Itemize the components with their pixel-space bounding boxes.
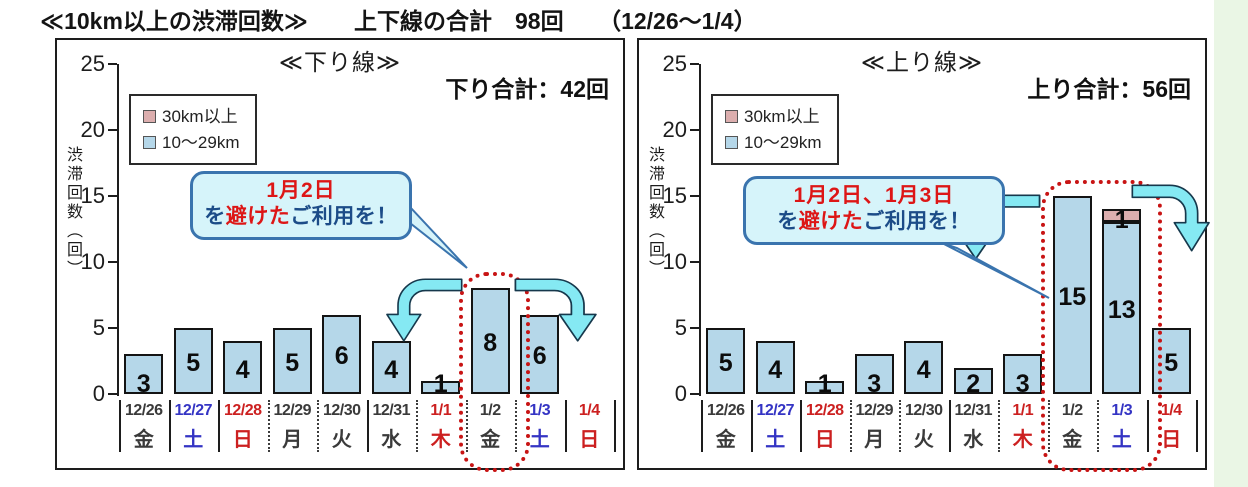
x-axis-weekday: 月: [268, 423, 318, 452]
bar-value-label: 4: [899, 358, 949, 383]
x-axis-day-label: 12/29月: [850, 402, 900, 452]
legend-swatch-30km-icon: [143, 110, 156, 123]
y-tick-label: 0: [61, 381, 105, 407]
x-axis-labels: 12/26金12/27土12/28日12/29月12/30火12/31水1/1木…: [119, 398, 619, 456]
bar-value-label: 5: [701, 351, 751, 376]
y-tick-label: 10: [61, 249, 105, 275]
y-tick-mark: [690, 195, 699, 197]
chart-panel-kudari: ≪下り線≫ 下り合計：42回 30km以上 10～29km 渋滞回数（回） 25…: [55, 38, 625, 470]
bar-value-label: 6: [317, 344, 367, 369]
y-tick-label: 0: [643, 381, 687, 407]
callout-line1: 1月2日、1月3日: [754, 183, 994, 209]
legend-label: 30km以上: [744, 104, 820, 130]
x-axis-weekday: 日: [218, 423, 268, 452]
y-tick-label: 10: [643, 249, 687, 275]
x-axis-day-label: 12/28日: [218, 402, 268, 452]
x-axis-date: 12/30: [899, 402, 949, 420]
callout-line2: を避けたご利用を！: [201, 204, 401, 230]
y-tick-label: 15: [643, 183, 687, 209]
y-tick-label: 20: [643, 117, 687, 143]
y-tick-mark: [690, 327, 699, 329]
x-axis-date: 12/29: [850, 402, 900, 420]
y-tick-label: 20: [61, 117, 105, 143]
y-tick-label: 5: [643, 315, 687, 341]
x-axis-date: 12/26: [701, 402, 751, 420]
x-axis-day-label: 12/26金: [701, 402, 751, 452]
bar-value-label: 5: [169, 351, 219, 376]
x-axis-date: 1/4: [565, 402, 615, 420]
legend-swatch-10-29km-icon: [725, 136, 738, 149]
bar-value-label: 4: [367, 358, 417, 383]
x-axis-day-label: 12/27土: [169, 402, 219, 452]
x-axis-weekday: 土: [751, 423, 801, 452]
background-strip: [1214, 0, 1248, 487]
callout-text: 避けた: [226, 205, 291, 228]
y-tick-label: 25: [61, 51, 105, 77]
x-axis-weekday: 月: [850, 423, 900, 452]
y-tick-mark: [690, 261, 699, 263]
callout-text: 避けた: [799, 210, 864, 233]
x-axis-day-label: 12/26金: [119, 402, 169, 452]
x-axis-day-label: 12/31水: [949, 402, 999, 452]
bar-value-label: 2: [949, 372, 999, 397]
callout-bubble: 1月2日 を避けたご利用を！: [190, 171, 412, 240]
callout-pointer: [409, 206, 469, 270]
x-axis-day-label: 12/31水: [367, 402, 417, 452]
bar-value-label: 3: [850, 372, 900, 397]
curved-arrow-right-icon: [1131, 184, 1211, 254]
y-tick-mark: [690, 129, 699, 131]
x-axis-day-label: 12/30火: [317, 402, 367, 452]
x-axis-day-label: 12/27土: [751, 402, 801, 452]
x-axis-weekday: 日: [800, 423, 850, 452]
x-axis-day-label: 1/4日: [565, 402, 615, 452]
x-axis-date: 12/27: [751, 402, 801, 420]
page-title: ≪10km以上の渋滞回数≫ 上下線の合計 98回 （12/26～1/4）: [40, 2, 757, 36]
legend-item: 10～29km: [725, 130, 821, 156]
legend-swatch-10-29km-icon: [143, 136, 156, 149]
y-tick-mark: [690, 393, 699, 395]
legend: 30km以上 10～29km: [129, 94, 257, 165]
x-axis-date: 12/28: [218, 402, 268, 420]
y-tick-label: 15: [61, 183, 105, 209]
y-tick-label: 5: [61, 315, 105, 341]
legend-label: 10～29km: [162, 130, 239, 156]
bar-value-label: 1: [800, 372, 850, 397]
callout-line1: 1月2日: [201, 178, 401, 204]
y-tick-mark: [108, 63, 117, 65]
x-axis-date: 12/27: [169, 402, 219, 420]
x-axis-date: 12/26: [119, 402, 169, 420]
x-axis-date: 12/29: [268, 402, 318, 420]
chart-panel-nobori: ≪上り線≫ 上り合計：56回 30km以上 10～29km 渋滞回数（回） 25…: [637, 38, 1207, 470]
x-axis-weekday: 金: [701, 423, 751, 452]
y-tick-mark: [108, 129, 117, 131]
bar-value-label: 4: [751, 358, 801, 383]
legend-item: 30km以上: [725, 104, 821, 130]
bar-value-label: 5: [268, 351, 318, 376]
legend-swatch-30km-icon: [725, 110, 738, 123]
curved-arrow-left-icon: [385, 278, 463, 344]
curved-arrow-right-icon: [514, 278, 598, 344]
callout-bubble: 1月2日、1月3日 を避けたご利用を！: [743, 176, 1005, 245]
x-axis-separator: [1196, 400, 1198, 452]
x-axis-day-label: 12/30火: [899, 402, 949, 452]
x-axis-weekday: 火: [317, 423, 367, 452]
bar-value-label: 4: [218, 358, 268, 383]
x-axis-date: 12/31: [367, 402, 417, 420]
x-axis-date: 12/31: [949, 402, 999, 420]
x-axis-weekday: 火: [899, 423, 949, 452]
y-tick-mark: [108, 261, 117, 263]
x-axis-day-label: 12/28日: [800, 402, 850, 452]
x-axis-day-label: 12/29月: [268, 402, 318, 452]
legend-item: 10～29km: [143, 130, 239, 156]
callout-text: を: [777, 210, 799, 233]
bar-value-label: 3: [119, 372, 169, 397]
x-axis-date: 12/30: [317, 402, 367, 420]
x-axis-weekday: 水: [367, 423, 417, 452]
callout-text: ご利用を！: [290, 205, 398, 228]
y-tick-mark: [108, 195, 117, 197]
legend-label: 10～29km: [744, 130, 821, 156]
legend: 30km以上 10～29km: [711, 94, 839, 165]
congestion-chart-page: { "title": "≪10km以上の渋滞回数≫ 上下線の合計 98回 （12…: [0, 0, 1248, 487]
x-axis-weekday: 土: [169, 423, 219, 452]
callout-text: を: [204, 205, 226, 228]
y-tick-mark: [108, 327, 117, 329]
x-axis-weekday: 日: [565, 423, 615, 452]
x-axis-weekday: 金: [119, 423, 169, 452]
y-tick-label: 25: [643, 51, 687, 77]
callout-text: ご利用を！: [863, 210, 971, 233]
legend-label: 30km以上: [162, 104, 238, 130]
x-axis-date: 12/28: [800, 402, 850, 420]
callout-pointer: [941, 242, 1051, 300]
x-axis-weekday: 水: [949, 423, 999, 452]
legend-item: 30km以上: [143, 104, 239, 130]
y-tick-mark: [690, 63, 699, 65]
x-axis-separator: [614, 400, 616, 452]
callout-line2: を避けたご利用を！: [754, 209, 994, 235]
y-tick-mark: [108, 393, 117, 395]
